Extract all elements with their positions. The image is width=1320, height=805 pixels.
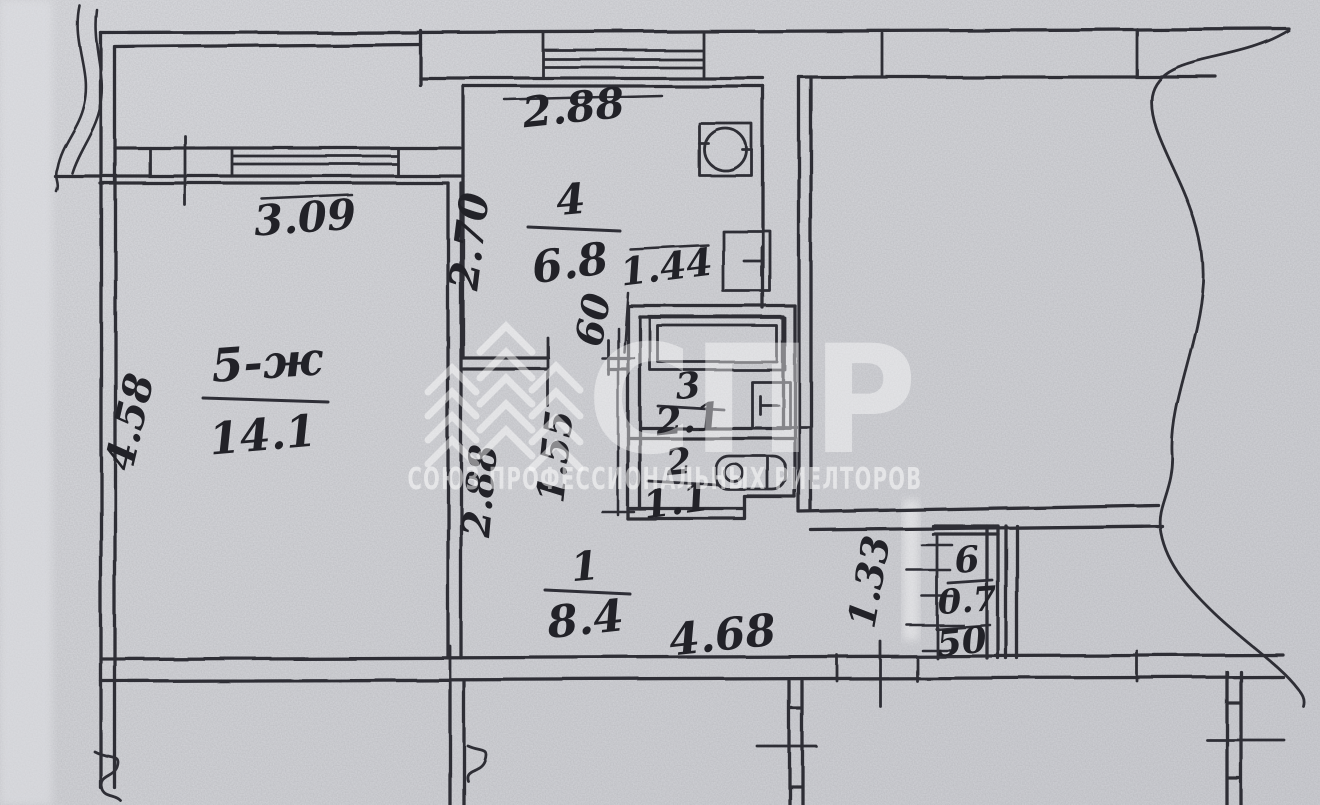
floor-plan-svg: 5-ж 14.1 4 6.8 3 2.1 2 1.1 1 8.4 (0, 0, 1320, 805)
room-area: 8.4 (544, 590, 626, 649)
room-number: 6 (953, 538, 982, 582)
room-number: 4 (554, 174, 587, 225)
room-area: 14.1 (207, 405, 318, 465)
room-area: 0.7 (936, 579, 998, 623)
paper-left-light-band (0, 0, 52, 805)
room-area: 6.8 (529, 233, 612, 294)
dim-room5-window: 3.09 (252, 190, 357, 246)
room-number: 5-ж (210, 331, 326, 393)
floorplan-scan: 5-ж 14.1 4 6.8 3 2.1 2 1.1 1 8.4 (0, 0, 1320, 805)
dim-closet-width: 50 (935, 619, 989, 666)
watermark-text: СОЮЗ ПРОФЕССИОНАЛЬНЫХ РИЕЛТОРОВ (408, 462, 923, 497)
room-number: 1 (569, 542, 601, 591)
